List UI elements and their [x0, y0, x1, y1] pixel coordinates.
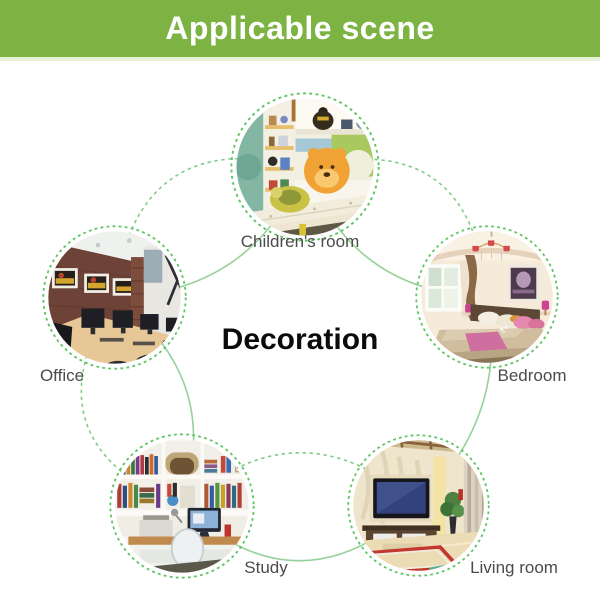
scene-label-children-room: Children's room — [241, 233, 360, 252]
bedroom-illustration — [414, 224, 560, 370]
living-room-illustration — [346, 433, 491, 578]
scene-label-bedroom: Bedroom — [498, 367, 567, 386]
scene-circle-living-room — [346, 433, 491, 578]
scene-circle-study — [108, 432, 256, 580]
scene-circle-bedroom — [414, 224, 560, 370]
children-room-photo — [229, 91, 381, 243]
applicable-scene-infographic: Applicable scene — [0, 0, 600, 600]
center-title: Decoration — [222, 323, 379, 357]
office-illustration — [41, 224, 188, 371]
bedroom-photo — [414, 224, 560, 370]
scene-label-living-room: Living room — [470, 559, 558, 578]
scene-circle-children-room — [229, 91, 381, 243]
children-room-illustration — [229, 91, 381, 243]
office-photo — [41, 224, 188, 371]
study-illustration — [108, 432, 256, 580]
scene-label-office: Office — [40, 367, 84, 386]
scene-circle-office — [41, 224, 188, 371]
study-photo — [108, 432, 256, 580]
living-room-photo — [346, 433, 491, 578]
scene-label-study: Study — [244, 559, 287, 578]
